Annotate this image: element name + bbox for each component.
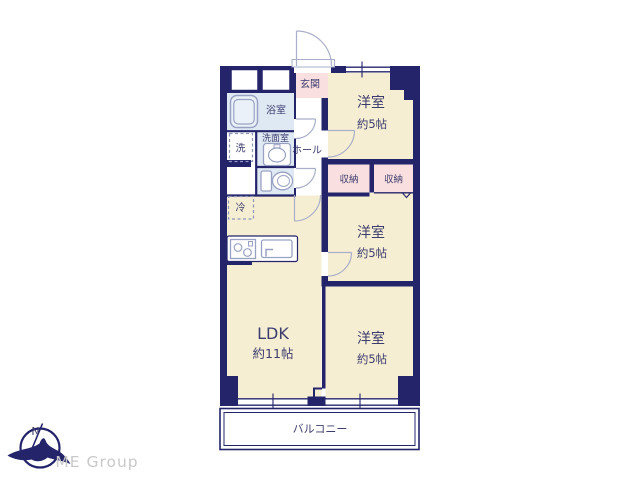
closet-a-bottom-wall bbox=[328, 193, 370, 197]
bottom-center-wall-block bbox=[308, 397, 326, 407]
ldk-label: LDK bbox=[257, 324, 289, 343]
bedroom-top-label: 洋室 bbox=[357, 94, 385, 111]
refrigerator-label: 冷 bbox=[236, 201, 246, 214]
hall-label: ホール bbox=[292, 145, 322, 157]
closet-b-label: 収納 bbox=[384, 174, 403, 186]
entrance-sill bbox=[292, 60, 335, 68]
spine-wall-a bbox=[322, 98, 329, 131]
bathroom-label: 浴室 bbox=[266, 104, 286, 117]
washroom-label: 洗面室 bbox=[262, 132, 289, 144]
entrance-label: 玄関 bbox=[300, 78, 320, 91]
pipe-space-icon bbox=[262, 70, 290, 91]
bedroom-bottom-label: 洋室 bbox=[357, 330, 385, 347]
compass-north-label: N bbox=[31, 425, 39, 438]
hall-left-wall-c bbox=[294, 188, 296, 196]
right-wall bbox=[413, 66, 420, 406]
corner-pillar-bottomleft bbox=[220, 376, 238, 406]
entrance-side-wall bbox=[294, 73, 296, 98]
spine-wall-b bbox=[322, 158, 329, 253]
ldk-area bbox=[227, 196, 322, 399]
pipe-space-icon bbox=[231, 70, 258, 91]
company-logo-text: ME Group bbox=[55, 453, 138, 471]
bedroom-mid-bottom-wall bbox=[322, 281, 414, 287]
toilet-tank-icon bbox=[261, 171, 272, 191]
closet-divider-wall bbox=[370, 165, 375, 193]
ldk-size: 約11帖 bbox=[253, 346, 294, 361]
corner-pillar-bottomright bbox=[398, 376, 420, 406]
balcony-label: バルコニー bbox=[293, 423, 348, 436]
bedroom-bottom-size: 約5帖 bbox=[357, 352, 387, 366]
bedroom-top-bottom-wall bbox=[328, 159, 413, 165]
floor-plan: 玄関 浴室 洗 洗面室 ホール 冷 収納 収納 洋室 約5帖 洋室 約5帖 洋室… bbox=[0, 0, 640, 480]
bedroom-mid-size: 約5帖 bbox=[357, 246, 387, 260]
bedroom-mid-label: 洋室 bbox=[357, 224, 385, 241]
ldk-bedroom-divider-wall bbox=[322, 287, 326, 389]
laundry-label: 洗 bbox=[236, 143, 246, 155]
left-wall bbox=[220, 66, 227, 406]
closet-a-label: 収納 bbox=[339, 174, 358, 186]
branding: N ME Group bbox=[8, 424, 139, 472]
hall-left-wall-a bbox=[294, 98, 296, 119]
bedroom-top-size: 約5帖 bbox=[357, 117, 387, 131]
